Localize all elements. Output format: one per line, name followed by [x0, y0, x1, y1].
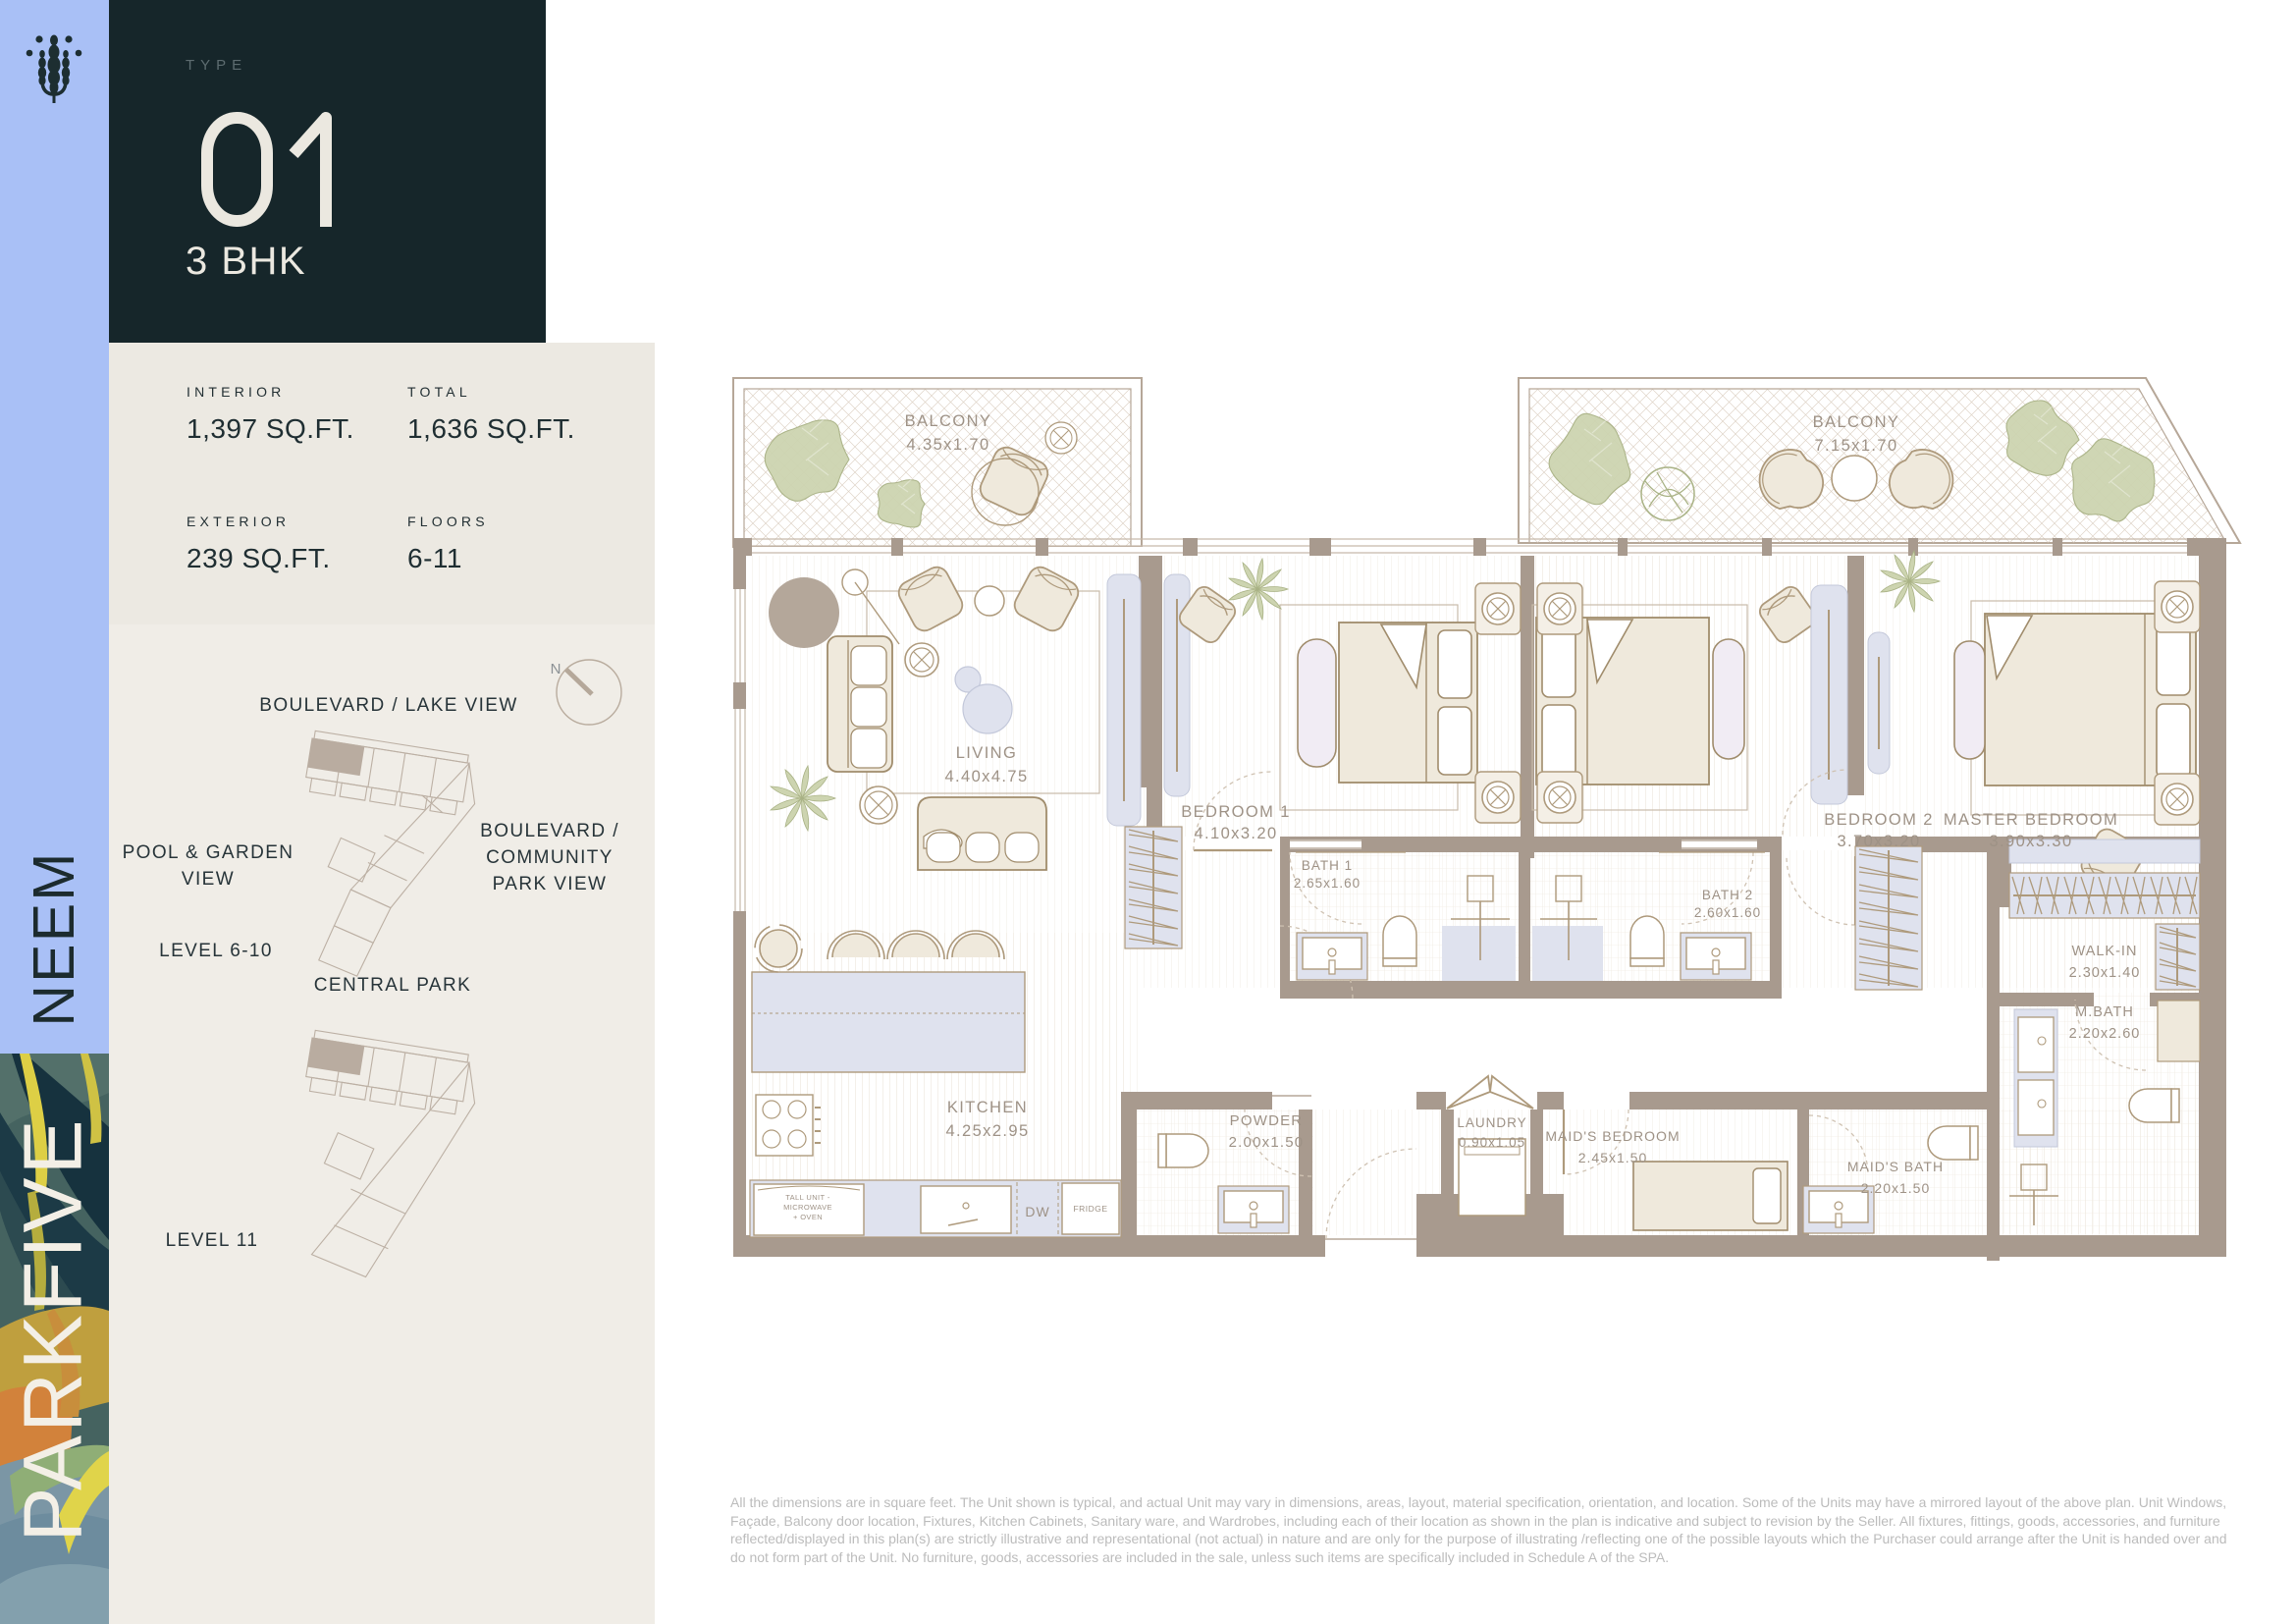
svg-text:4.40x4.75: 4.40x4.75 — [944, 768, 1028, 785]
svg-text:2.20x2.60: 2.20x2.60 — [2069, 1026, 2141, 1042]
svg-text:MICROWAVE: MICROWAVE — [783, 1203, 832, 1212]
svg-text:2.65x1.60: 2.65x1.60 — [1294, 876, 1361, 891]
svg-text:4.10x3.20: 4.10x3.20 — [1194, 825, 1277, 842]
svg-text:2.00x1.50: 2.00x1.50 — [1229, 1134, 1305, 1151]
svg-text:WALK-IN: WALK-IN — [2072, 944, 2138, 959]
svg-text:BATH 2: BATH 2 — [1702, 888, 1753, 902]
svg-text:N: N — [551, 661, 561, 677]
svg-text:MAID'S BATH: MAID'S BATH — [1847, 1159, 1944, 1174]
svg-text:3.70x3.20: 3.70x3.20 — [1837, 833, 1920, 850]
svg-text:LAUNDRY: LAUNDRY — [1457, 1115, 1526, 1130]
svg-text:DW: DW — [1025, 1204, 1049, 1219]
svg-text:3.90x3.30: 3.90x3.30 — [1989, 833, 2072, 850]
svg-text:4.25x2.95: 4.25x2.95 — [945, 1122, 1029, 1140]
svg-text:2.45x1.50: 2.45x1.50 — [1578, 1150, 1648, 1165]
svg-text:TALL UNIT -: TALL UNIT - — [785, 1193, 830, 1202]
svg-text:POWDER: POWDER — [1230, 1112, 1304, 1129]
svg-text:BALCONY: BALCONY — [1813, 413, 1900, 431]
svg-text:MASTER BEDROOM: MASTER BEDROOM — [1944, 811, 2118, 829]
svg-text:BEDROOM 1: BEDROOM 1 — [1181, 803, 1291, 821]
svg-text:BATH 1: BATH 1 — [1302, 858, 1353, 873]
svg-text:2.30x1.40: 2.30x1.40 — [2069, 965, 2141, 981]
svg-text:0.90x1.05: 0.90x1.05 — [1459, 1135, 1525, 1150]
svg-text:+ OVEN: + OVEN — [793, 1213, 823, 1221]
svg-text:2.20x1.50: 2.20x1.50 — [1861, 1180, 1931, 1196]
svg-text:BEDROOM 2: BEDROOM 2 — [1824, 811, 1934, 829]
svg-text:M.BATH: M.BATH — [2075, 1004, 2134, 1020]
svg-text:LIVING: LIVING — [956, 744, 1018, 762]
svg-text:MAID'S BEDROOM: MAID'S BEDROOM — [1545, 1128, 1680, 1144]
svg-text:4.35x1.70: 4.35x1.70 — [906, 436, 989, 454]
svg-text:7.15x1.70: 7.15x1.70 — [1814, 437, 1897, 455]
svg-text:FRIDGE: FRIDGE — [1073, 1204, 1107, 1214]
svg-text:KITCHEN: KITCHEN — [947, 1099, 1028, 1116]
svg-text:BALCONY: BALCONY — [905, 412, 992, 430]
svg-text:2.60x1.60: 2.60x1.60 — [1694, 905, 1761, 920]
